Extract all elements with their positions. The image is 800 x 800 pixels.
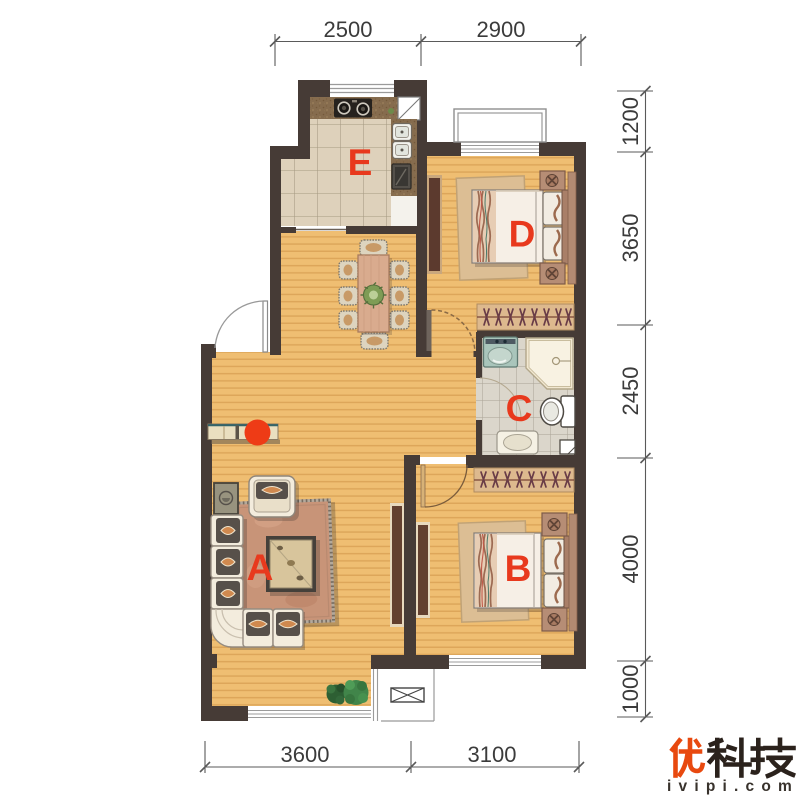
svg-text:1000: 1000 <box>618 665 643 714</box>
svg-text:A: A <box>247 547 274 588</box>
svg-text:3600: 3600 <box>281 742 330 767</box>
svg-text:C: C <box>506 388 533 429</box>
svg-text:ivipi.com: ivipi.com <box>667 778 799 795</box>
svg-text:B: B <box>505 548 532 589</box>
svg-text:2450: 2450 <box>618 367 643 416</box>
svg-text:2900: 2900 <box>477 17 526 42</box>
svg-text:D: D <box>509 214 536 255</box>
svg-text:4000: 4000 <box>618 535 643 584</box>
svg-text:3100: 3100 <box>468 742 517 767</box>
svg-text:1200: 1200 <box>618 97 643 146</box>
svg-text:E: E <box>348 142 373 183</box>
svg-text:2500: 2500 <box>324 17 373 42</box>
svg-text:3650: 3650 <box>618 214 643 263</box>
